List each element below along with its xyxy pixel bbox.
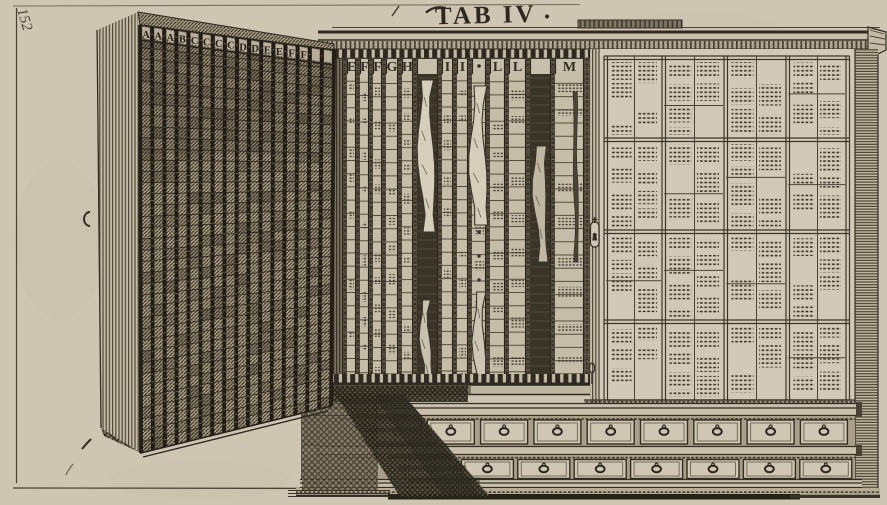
svg-text:D: D	[239, 42, 247, 53]
svg-text:TAB IV: TAB IV	[435, 1, 537, 31]
svg-text:D: D	[251, 44, 259, 55]
svg-text:A: A	[154, 31, 162, 42]
svg-text:C: C	[215, 39, 223, 50]
svg-text:A: A	[142, 30, 150, 41]
svg-text:C: C	[227, 41, 235, 52]
svg-text:B: B	[179, 35, 186, 46]
svg-text:C: C	[203, 38, 211, 49]
svg-text:E: E	[264, 45, 271, 56]
svg-text:A: A	[167, 33, 175, 44]
svg-text:F: F	[300, 50, 306, 61]
svg-text:E: E	[276, 47, 283, 58]
svg-text:C: C	[191, 36, 199, 47]
svg-text:F: F	[288, 49, 294, 60]
